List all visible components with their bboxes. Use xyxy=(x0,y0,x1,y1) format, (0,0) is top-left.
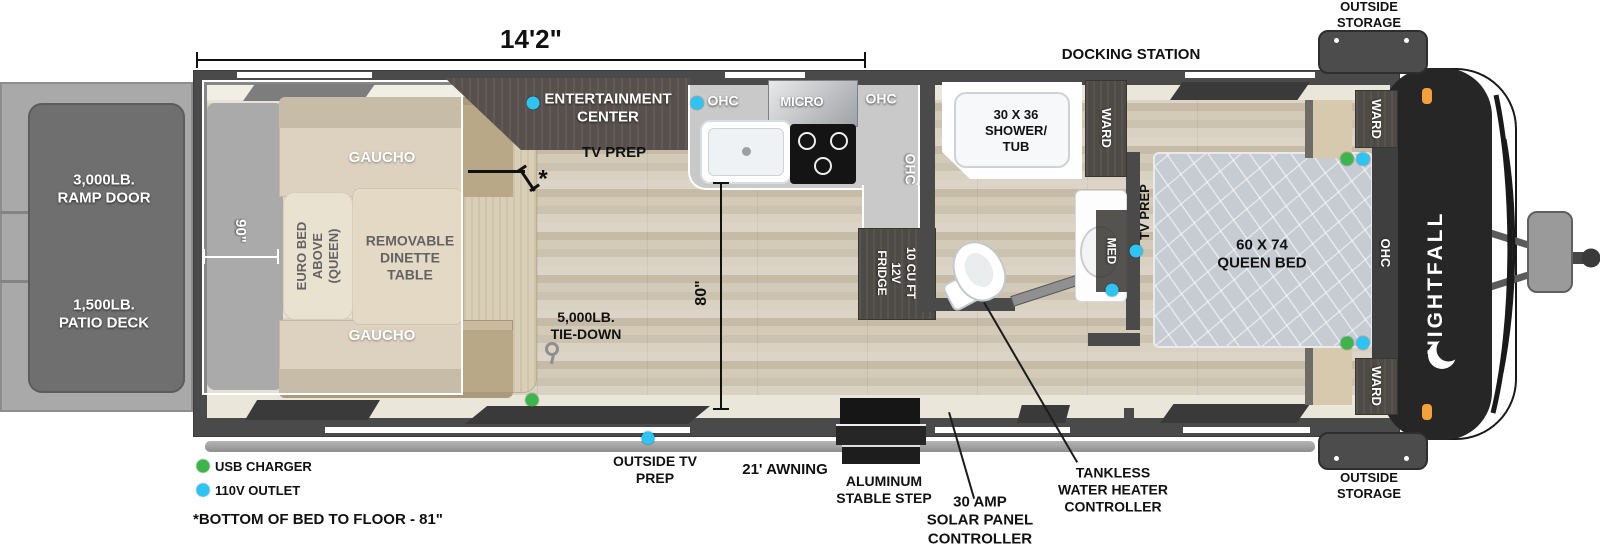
burner-icon xyxy=(814,157,832,175)
ohc-label: OHC xyxy=(707,92,738,109)
tie-down-label: 5,000LB.TIE-DOWN xyxy=(551,309,622,343)
stove xyxy=(790,124,856,184)
legend-outlet-label: 110V OUTLET xyxy=(215,483,300,499)
outside-storage-top-label: OUTSIDESTORAGE xyxy=(1337,0,1401,31)
ramp-door-area xyxy=(28,103,185,393)
microwave-label: MICRO xyxy=(780,94,823,110)
dim-80-label: 80" xyxy=(692,280,712,305)
ohc-label: OHC xyxy=(865,90,896,107)
outlet-110v-dot xyxy=(691,97,704,110)
outside-storage-top xyxy=(1318,30,1428,74)
patio-deck-label: 1,500LB.PATIO DECK xyxy=(59,297,149,334)
queen-bed-label: 60 X 74QUEEN BED xyxy=(1217,237,1306,274)
usb-charger-dot xyxy=(526,394,539,407)
docking-station-label: DOCKING STATION xyxy=(1062,46,1201,64)
hitch-ball xyxy=(1582,249,1600,268)
burner-icon xyxy=(830,132,848,150)
window-glass xyxy=(1170,82,1310,100)
dim-length-line xyxy=(197,59,866,61)
usb-charger-dot xyxy=(1341,153,1354,166)
dim-length-label: 14'2" xyxy=(500,24,562,56)
shower-label: 30 X 36SHOWER/TUB xyxy=(985,107,1047,155)
gaucho-bottom-end xyxy=(463,330,513,392)
dim-90-label: 90" xyxy=(231,219,249,243)
window-glass xyxy=(245,400,380,420)
ward-bath-label: WARD xyxy=(1098,108,1114,148)
ohc-bed-label: OHC xyxy=(1377,239,1393,268)
solar-label: 30 AMPSOLAR PANELCONTROLLER xyxy=(927,494,1033,549)
brand-logo-text: NIGHTFALL xyxy=(1424,211,1447,356)
ramp-door-label: 3,000LB.RAMP DOOR xyxy=(57,172,150,209)
outside-storage-bottom-label: OUTSIDESTORAGE xyxy=(1337,470,1401,502)
bed-height-note: *BOTTOM OF BED TO FLOOR - 81" xyxy=(193,511,443,529)
asterisk-marker: * xyxy=(538,164,547,193)
window-strip xyxy=(1183,427,1310,433)
window-glass xyxy=(465,406,710,424)
ward-front-top-label: WARD xyxy=(1368,99,1384,139)
dim-80-tick xyxy=(713,182,729,184)
outside-storage-bottom xyxy=(1318,432,1428,470)
storage-screw xyxy=(1404,38,1409,43)
legend-usb-label: USB CHARGER xyxy=(215,459,312,475)
entry-step xyxy=(840,398,920,424)
floorplan: 3,000LB.RAMP DOOR 1,500LB.PATIO DECK NIG… xyxy=(0,0,1600,555)
tv-prep-bed-label: TV PREP xyxy=(1137,184,1153,240)
faucet-icon xyxy=(742,147,751,156)
outlet-110v-dot xyxy=(1106,284,1119,297)
window-strip xyxy=(325,427,690,433)
awning-label: 21' AWNING xyxy=(742,461,828,479)
window-strip xyxy=(725,72,805,78)
dim-80-tick xyxy=(713,408,729,410)
bath-wall-left xyxy=(920,72,935,312)
clearance-light xyxy=(1422,88,1432,104)
ward-front-bottom-label: WARD xyxy=(1368,366,1384,406)
outside-tv-prep-label: OUTSIDE TVPREP xyxy=(613,453,697,487)
clearance-light xyxy=(1422,404,1432,420)
bath-wall-corner xyxy=(1088,333,1140,346)
entertainment-center-label: ENTERTAINMENTCENTER xyxy=(544,91,671,128)
window-strip xyxy=(237,72,372,78)
usb-charger-dot xyxy=(1341,337,1354,350)
window-glass xyxy=(1160,404,1310,423)
outlet-110v-dot xyxy=(1130,245,1143,258)
bath-wall-stub xyxy=(1124,408,1134,422)
deck-rail-divider xyxy=(0,211,28,214)
outlet-110v-dot xyxy=(1357,337,1370,350)
awning-rail xyxy=(205,441,1315,452)
entry-step xyxy=(836,424,926,445)
outlet-110v-dot xyxy=(527,97,540,110)
storage-screw xyxy=(1404,456,1409,461)
dim-90-tick xyxy=(277,249,279,264)
med-cabinet-label: MED xyxy=(1104,238,1119,265)
window-strip xyxy=(1185,72,1315,78)
burner-icon xyxy=(798,132,816,150)
propane-cover xyxy=(1528,212,1572,292)
fridge-label: 10 CU FT12VFRIDGE xyxy=(874,247,918,299)
front-cap: NIGHTFALL xyxy=(1378,55,1600,457)
outlet-110v-dot xyxy=(642,432,655,445)
legend-usb-dot xyxy=(197,460,210,473)
nightstand-top xyxy=(1305,100,1352,158)
storage-screw xyxy=(1334,38,1339,43)
dim-90-line xyxy=(204,256,279,258)
dim-length-tick xyxy=(864,52,866,68)
entry-step xyxy=(842,445,920,464)
ohc-label-vertical: OHC xyxy=(901,153,918,184)
dim-length-tick xyxy=(196,52,198,68)
deck-rail-divider xyxy=(0,280,28,283)
nightstand-bottom xyxy=(1305,348,1352,405)
dim-80-line xyxy=(720,183,722,410)
tankless-label: TANKLESSWATER HEATERCONTROLLER xyxy=(1058,464,1168,515)
legend-outlet-dot xyxy=(197,484,210,497)
tv-prep-label: TV PREP xyxy=(582,144,646,162)
step-label: ALUMINUMSTABLE STEP xyxy=(836,473,931,507)
dim-90-tick xyxy=(203,249,205,264)
outlet-110v-dot xyxy=(1357,153,1370,166)
bath-wall-right xyxy=(1126,152,1140,330)
storage-screw xyxy=(1334,456,1339,461)
